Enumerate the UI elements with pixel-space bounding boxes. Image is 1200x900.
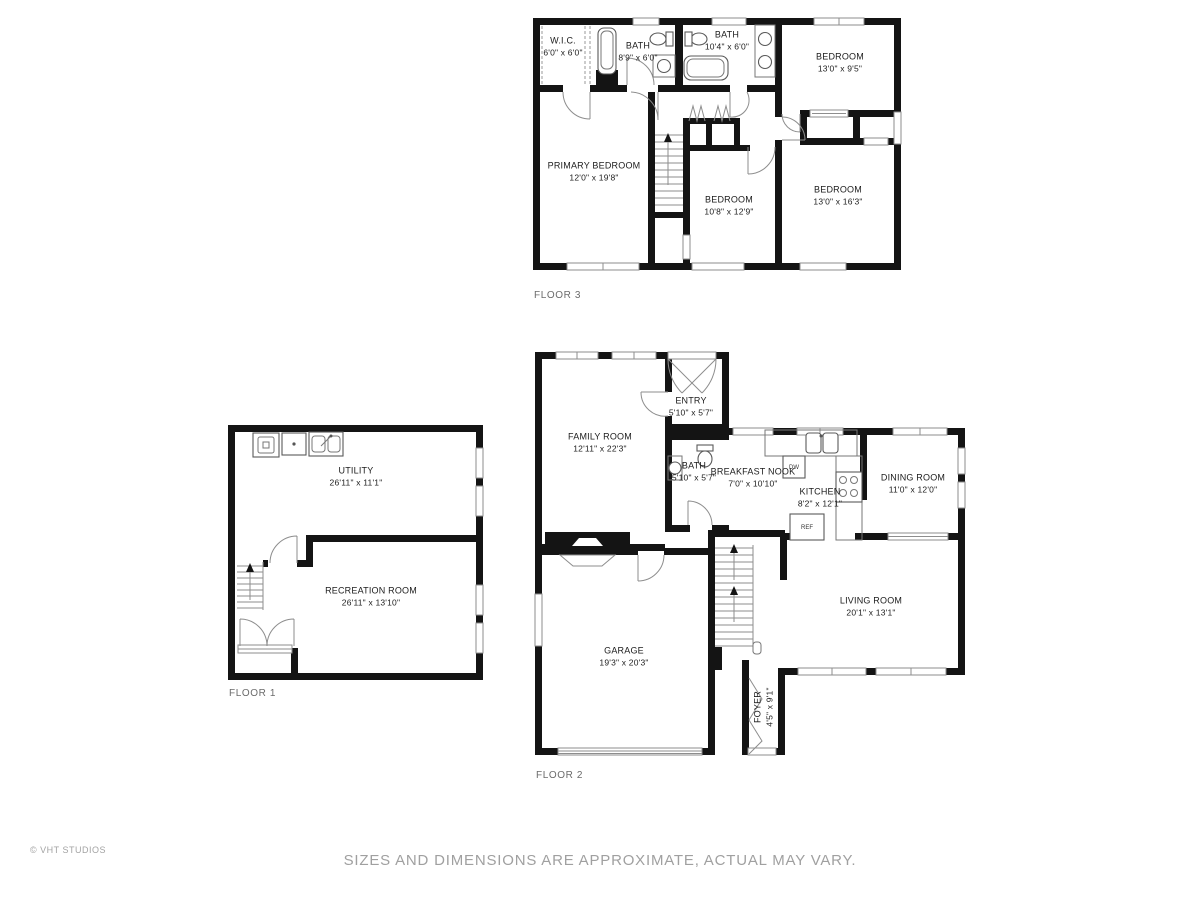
room-dims: 10'8" x 12'9" bbox=[704, 206, 753, 217]
room-label-bedroom-r: BEDROOM 13'0" x 16'3" bbox=[813, 185, 862, 208]
room-label-foyer: FOYER 4'5" x 9'1" bbox=[753, 687, 776, 726]
floor3-stairs bbox=[655, 133, 683, 205]
disclaimer-text: SIZES AND DIMENSIONS ARE APPROXIMATE, AC… bbox=[0, 852, 1200, 869]
room-name: FOYER bbox=[753, 687, 765, 726]
washer-icon bbox=[253, 433, 279, 457]
room-dims: 8'2" x 12'1" bbox=[798, 498, 842, 509]
room-dims: 7'0" x 10'10" bbox=[711, 478, 796, 489]
room-label-bath: BATH 5'10" x 5'7" bbox=[672, 461, 716, 484]
room-name: ENTRY bbox=[669, 396, 713, 408]
bathtub-icon bbox=[684, 56, 728, 80]
room-label-utility: UTILITY 26'11" x 11'1" bbox=[330, 466, 383, 489]
room-label-entry: ENTRY 5'10" x 5'7" bbox=[669, 396, 713, 419]
room-label-bedroom-tr: BEDROOM 13'0" x 9'5" bbox=[816, 52, 864, 75]
room-label-bedroom-m: BEDROOM 10'8" x 12'9" bbox=[704, 195, 753, 218]
room-dims: 5'10" x 5'7" bbox=[669, 407, 713, 418]
floor2-label: FLOOR 2 bbox=[536, 770, 583, 781]
dryer-icon bbox=[282, 433, 306, 455]
room-name: FAMILY ROOM bbox=[568, 432, 632, 444]
room-label-bath-b: BATH 10'4" x 6'0" bbox=[705, 30, 749, 53]
room-name: BATH bbox=[672, 461, 716, 473]
room-dims: 6'0" x 6'0" bbox=[543, 47, 582, 58]
room-name: RECREATION ROOM bbox=[325, 586, 417, 598]
double-sink-icon bbox=[755, 25, 775, 77]
room-name: PRIMARY BEDROOM bbox=[548, 161, 641, 173]
room-name: BEDROOM bbox=[704, 195, 753, 207]
room-name: GARAGE bbox=[599, 646, 648, 658]
room-label-bath-a: BATH 8'9" x 6'0" bbox=[618, 41, 657, 64]
room-dims: 19'3" x 20'3" bbox=[599, 657, 648, 668]
room-dims: 10'4" x 6'0" bbox=[705, 41, 749, 52]
room-name: BATH bbox=[705, 30, 749, 42]
bathtub-icon bbox=[598, 28, 616, 74]
room-label-breakfast-nook: BREAKFAST NOOK 7'0" x 10'10" bbox=[711, 467, 796, 490]
floor3-label: FLOOR 3 bbox=[534, 290, 581, 301]
kitchen-sink-icon bbox=[806, 433, 838, 453]
floor1-stairs bbox=[237, 562, 263, 610]
room-dims: 13'0" x 16'3" bbox=[813, 196, 862, 207]
floor1-label: FLOOR 1 bbox=[229, 688, 276, 699]
room-label-family-room: FAMILY ROOM 12'11" x 22'3" bbox=[568, 432, 632, 455]
room-dims: 8'9" x 6'0" bbox=[618, 52, 657, 63]
room-label-recreation: RECREATION ROOM 26'11" x 13'10" bbox=[325, 586, 417, 609]
room-name: DINING ROOM bbox=[881, 473, 945, 485]
room-label-living-room: LIVING ROOM 20'1" x 13'1" bbox=[840, 596, 902, 619]
room-label-garage: GARAGE 19'3" x 20'3" bbox=[599, 646, 648, 669]
room-name: BATH bbox=[618, 41, 657, 53]
room-dims: 12'11" x 22'3" bbox=[568, 443, 632, 454]
floor1-doors bbox=[240, 536, 297, 646]
room-dims: 26'11" x 13'10" bbox=[325, 597, 417, 608]
room-dims: 11'0" x 12'0" bbox=[881, 484, 945, 495]
room-label-primary-bedroom: PRIMARY BEDROOM 12'0" x 19'8" bbox=[548, 161, 641, 184]
toilet-icon bbox=[685, 32, 707, 46]
room-label-dining-room: DINING ROOM 11'0" x 12'0" bbox=[881, 473, 945, 496]
room-dims: 26'11" x 11'1" bbox=[330, 477, 383, 488]
room-dims: 5'10" x 5'7" bbox=[672, 472, 716, 483]
laundry-sink-icon bbox=[309, 432, 343, 456]
room-name: LIVING ROOM bbox=[840, 596, 902, 608]
room-name: KITCHEN bbox=[798, 487, 842, 499]
room-dims: 4'5" x 9'1" bbox=[764, 687, 775, 726]
floor2-stairs bbox=[715, 544, 761, 654]
floor2-plan: DW REF bbox=[535, 352, 965, 755]
room-dims: 20'1" x 13'1" bbox=[840, 607, 902, 618]
room-name: W.I.C. bbox=[543, 36, 582, 48]
room-label-kitchen: KITCHEN 8'2" x 12'1" bbox=[798, 487, 842, 510]
room-label-wic: W.I.C. 6'0" x 6'0" bbox=[543, 36, 582, 59]
floor1-plan bbox=[228, 425, 483, 680]
room-name: UTILITY bbox=[330, 466, 383, 478]
room-dims: 13'0" x 9'5" bbox=[816, 63, 864, 74]
room-name: BEDROOM bbox=[813, 185, 862, 197]
room-dims: 12'0" x 19'8" bbox=[548, 172, 641, 183]
room-name: BEDROOM bbox=[816, 52, 864, 64]
floorplan-canvas: DW REF W.I.C. 6'0" x 6'0" BATH 8'9" x 6'… bbox=[0, 0, 1200, 900]
refrigerator-label: REF bbox=[801, 525, 813, 531]
room-name: BREAKFAST NOOK bbox=[711, 467, 796, 479]
